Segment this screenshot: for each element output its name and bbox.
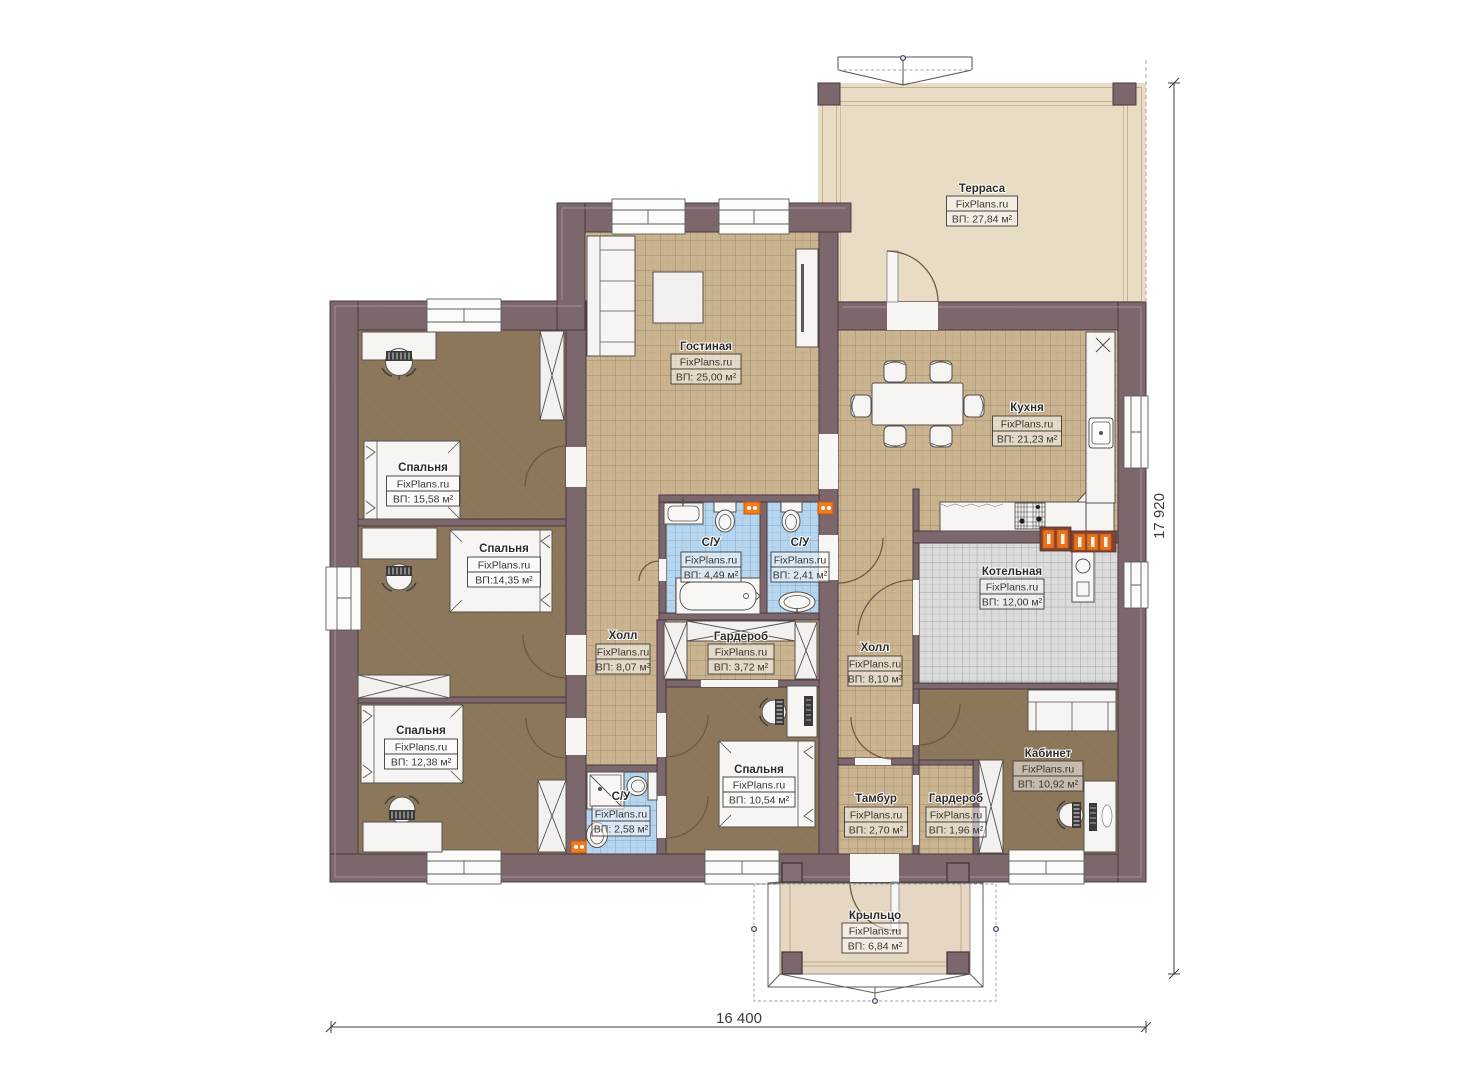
svg-text:17 920: 17 920 — [1151, 493, 1168, 539]
svg-text:16 400: 16 400 — [716, 1010, 762, 1027]
svg-text:FixPlans.ru: FixPlans.ru — [849, 659, 902, 671]
svg-text:Холл: Холл — [609, 630, 638, 642]
svg-text:ВП: 12,38 м²: ВП: 12,38 м² — [391, 757, 452, 769]
svg-text:ВП: 25,00 м²: ВП: 25,00 м² — [676, 372, 737, 384]
svg-text:ВП: 12,00 м²: ВП: 12,00 м² — [982, 597, 1043, 609]
svg-text:Спальня: Спальня — [479, 543, 529, 555]
svg-text:FixPlans.ru: FixPlans.ru — [733, 780, 786, 792]
svg-text:FixPlans.ru: FixPlans.ru — [849, 926, 902, 938]
svg-text:FixPlans.ru: FixPlans.ru — [1022, 764, 1075, 776]
svg-text:FixPlans.ru: FixPlans.ru — [397, 479, 450, 491]
svg-text:ВП: 4,49 м²: ВП: 4,49 м² — [684, 570, 739, 582]
svg-text:ВП: 2,58 м²: ВП: 2,58 м² — [594, 824, 649, 836]
svg-text:FixPlans.ru: FixPlans.ru — [930, 810, 983, 822]
svg-text:ВП: 3,72 м²: ВП: 3,72 м² — [714, 662, 769, 674]
svg-text:FixPlans.ru: FixPlans.ru — [774, 555, 827, 567]
svg-text:FixPlans.ru: FixPlans.ru — [1001, 419, 1054, 431]
svg-text:С/У: С/У — [612, 791, 632, 803]
svg-text:ВП: 21,23 м²: ВП: 21,23 м² — [997, 434, 1058, 446]
svg-text:ВП: 27,84 м²: ВП: 27,84 м² — [952, 214, 1013, 226]
svg-text:ВП: 8,10 м²: ВП: 8,10 м² — [848, 674, 903, 686]
svg-text:ВП: 1,96 м²: ВП: 1,96 м² — [929, 825, 984, 837]
svg-text:ВП:14,35 м²: ВП:14,35 м² — [475, 575, 533, 587]
svg-text:ВП: 15,58 м²: ВП: 15,58 м² — [393, 494, 454, 506]
svg-text:ВП: 2,41 м²: ВП: 2,41 м² — [773, 570, 828, 582]
svg-text:FixPlans.ru: FixPlans.ru — [986, 582, 1039, 594]
svg-text:FixPlans.ru: FixPlans.ru — [850, 810, 903, 822]
svg-text:Крыльцо: Крыльцо — [849, 910, 901, 922]
svg-text:FixPlans.ru: FixPlans.ru — [478, 560, 531, 572]
svg-text:Спальня: Спальня — [734, 764, 784, 776]
svg-text:ВП: 6,84 м²: ВП: 6,84 м² — [848, 941, 903, 953]
svg-text:Котельная: Котельная — [982, 566, 1042, 578]
svg-text:С/У: С/У — [791, 537, 811, 549]
svg-text:ВП: 10,54 м²: ВП: 10,54 м² — [729, 795, 790, 807]
svg-text:Кабинет: Кабинет — [1025, 748, 1072, 760]
svg-text:Холл: Холл — [861, 642, 890, 654]
svg-text:FixPlans.ru: FixPlans.ru — [595, 809, 648, 821]
svg-text:Кухня: Кухня — [1010, 402, 1044, 414]
svg-text:FixPlans.ru: FixPlans.ru — [597, 647, 650, 659]
svg-text:Терраса: Терраса — [959, 183, 1006, 195]
svg-text:FixPlans.ru: FixPlans.ru — [680, 357, 733, 369]
svg-text:FixPlans.ru: FixPlans.ru — [956, 199, 1009, 211]
svg-text:FixPlans.ru: FixPlans.ru — [685, 555, 738, 567]
svg-text:Гардероб: Гардероб — [929, 793, 983, 805]
svg-text:Гардероб: Гардероб — [714, 631, 768, 643]
svg-text:С/У: С/У — [702, 537, 722, 549]
svg-text:FixPlans.ru: FixPlans.ru — [395, 742, 448, 754]
svg-text:Гостиная: Гостиная — [680, 341, 732, 353]
svg-text:ВП: 10,92 м²: ВП: 10,92 м² — [1018, 779, 1079, 791]
svg-text:Спальня: Спальня — [396, 725, 446, 737]
svg-text:FixPlans.ru: FixPlans.ru — [715, 647, 768, 659]
svg-text:ВП: 2,70 м²: ВП: 2,70 м² — [849, 825, 904, 837]
svg-text:Спальня: Спальня — [398, 462, 448, 474]
svg-text:ВП: 8,07 м²: ВП: 8,07 м² — [596, 662, 651, 674]
svg-text:Тамбур: Тамбур — [855, 793, 897, 805]
